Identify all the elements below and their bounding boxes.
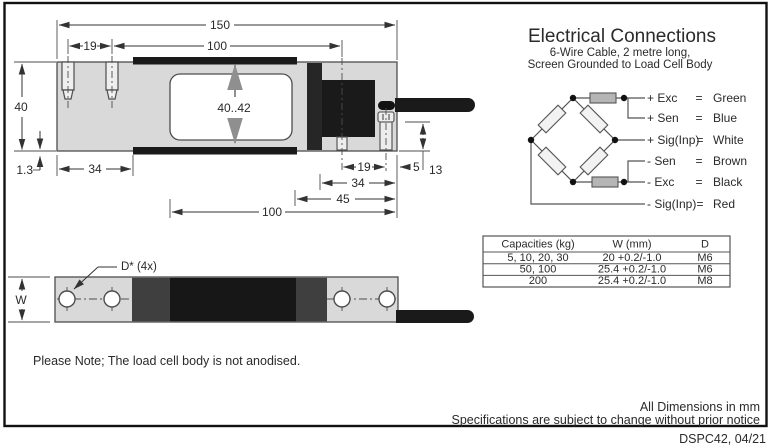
side-view-drawing: 150 19 100 40 1.3 34 40..42 19 34 45 100… [14, 18, 475, 219]
cell-d: M6 [697, 264, 712, 276]
electrical-subtitle-2: Screen Grounded to Load Cell Body [528, 59, 713, 71]
table-header-w: W (mm) [612, 239, 651, 251]
dim-34-right-label: 34 [351, 176, 365, 190]
dim-19-left-label: 19 [83, 39, 97, 53]
equals-sign: = [695, 91, 702, 105]
resistor [592, 177, 618, 187]
wire-color-label: Black [713, 175, 743, 189]
table-header-capacities: Capacities (kg) [501, 239, 574, 251]
dim-1-3-label: 1.3 [16, 163, 33, 177]
electrical-title: Electrical Connections [528, 26, 716, 47]
cable-side-view [395, 98, 475, 112]
signal-label: - Sig(Inp) [647, 197, 696, 211]
strain-gauge [580, 147, 608, 175]
wire-color-label: Green [713, 91, 746, 105]
cell-w: 25.4 +0.2/-1.0 [598, 264, 666, 276]
cell-capacities: 5, 10, 20, 30 [507, 252, 568, 264]
datasheet-page: 150 19 100 40 1.3 34 40..42 19 34 45 100… [0, 0, 770, 448]
dim-45-label: 45 [336, 192, 350, 206]
dim-34-left-label: 34 [88, 162, 102, 176]
dim-150-label: 150 [210, 18, 230, 32]
plan-black-band [170, 278, 296, 322]
connection-list: + Exc = Green + Sen = Blue + Sig(Inp) = … [647, 91, 747, 211]
dim-100-top-label: 100 [207, 39, 227, 53]
cable-gland [378, 101, 395, 110]
capacities-table: Capacities (kg) W (mm) D 5, 10, 20, 30 2… [483, 236, 730, 287]
wire-color-label: White [713, 133, 744, 147]
strain-gauges [538, 105, 608, 175]
equals-sign: = [695, 111, 702, 125]
flexure-gap-band [307, 63, 322, 150]
cell-d: M6 [697, 252, 712, 264]
signal-label: + Sig(Inp) [647, 133, 699, 147]
cell-capacities: 200 [529, 275, 547, 287]
signal-label: - Exc [647, 175, 674, 189]
wiring-diagram: Electrical Connections 6-Wire Cable, 2 m… [528, 26, 747, 211]
signal-label: + Exc [647, 91, 677, 105]
hole-callout-label: D* (4x) [121, 261, 157, 273]
signal-label: + Sen [647, 111, 679, 125]
table-header-d: D [701, 239, 709, 251]
cable-plan-view [396, 310, 474, 323]
equals-sign: = [696, 197, 703, 211]
connection-row: - Sig(Inp) = Red [647, 197, 735, 211]
bottom-load-strip [133, 147, 297, 155]
resistor [590, 93, 616, 103]
connection-row: - Sen = Brown [647, 154, 747, 168]
dim-w-label: W [15, 293, 27, 307]
strain-gauge [538, 105, 566, 133]
equals-sign: = [695, 154, 702, 168]
dim-5-label: 5 [413, 160, 420, 174]
wire-color-label: Brown [713, 154, 747, 168]
strain-gauge [538, 147, 566, 175]
plan-darkgray-band-right [296, 278, 327, 322]
plan-darkgray-band-left [132, 278, 170, 322]
strain-gauge [580, 105, 608, 133]
dim-100-bottom-label: 100 [262, 205, 282, 219]
cell-capacities: 50, 100 [520, 264, 557, 276]
connection-row: + Exc = Green [647, 91, 746, 105]
cell-d: M8 [697, 275, 712, 287]
w-extension-lines [8, 277, 50, 322]
junction-dots [528, 95, 627, 185]
cell-w: 20 +0.2/-1.0 [602, 252, 661, 264]
connection-row: + Sig(Inp) = White [647, 133, 744, 147]
wire-color-label: Red [713, 197, 735, 211]
equals-sign: = [696, 133, 703, 147]
wire-color-label: Blue [713, 111, 737, 125]
dim-19-right-label: 19 [357, 160, 371, 174]
dim-40-label: 40 [14, 100, 28, 114]
dim-aperture-label: 40..42 [217, 101, 251, 115]
equals-sign: = [695, 175, 702, 189]
plan-view-drawing: W D* (4x) [8, 261, 474, 323]
dim-13-label: 13 [429, 163, 443, 177]
document-code: DSPC42, 04/21 [679, 432, 766, 446]
signal-label: - Sen [647, 154, 676, 168]
anodising-note: Please Note; The load cell body is not a… [33, 354, 300, 368]
electrical-subtitle-1: 6-Wire Cable, 2 metre long, [550, 47, 691, 59]
datasheet-drawing: 150 19 100 40 1.3 34 40..42 19 34 45 100… [0, 0, 770, 448]
footer-spec-note: Specifications are subject to change wit… [451, 413, 760, 427]
cell-w: 25.4 +0.2/-1.0 [598, 275, 666, 287]
connection-row: - Exc = Black [647, 175, 743, 189]
end-block [322, 80, 375, 137]
top-load-strip [133, 57, 297, 65]
footer-dimensions-note: All Dimensions in mm [640, 400, 760, 414]
connection-row: + Sen = Blue [647, 111, 737, 125]
